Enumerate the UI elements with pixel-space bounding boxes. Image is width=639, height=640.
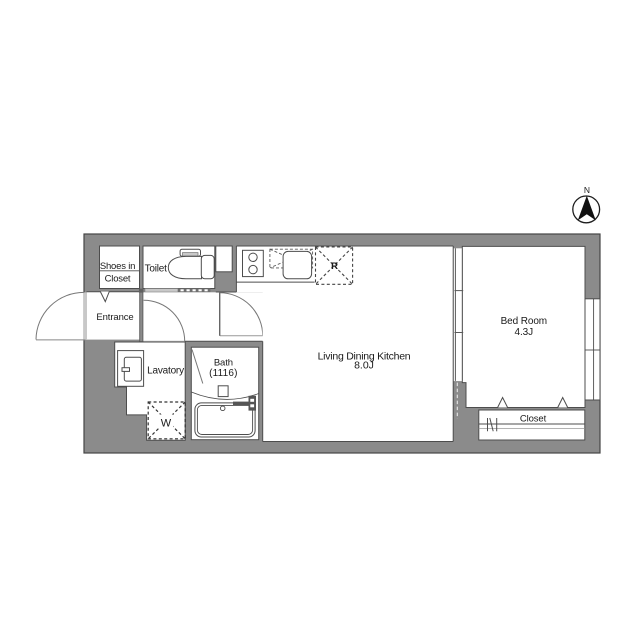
svg-text:Toilet: Toilet (145, 263, 168, 274)
svg-text:Entrance: Entrance (96, 312, 133, 323)
svg-text:R: R (331, 261, 338, 272)
svg-text:4.3J: 4.3J (515, 327, 534, 338)
svg-text:Bed Room: Bed Room (501, 316, 547, 327)
svg-text:Closet: Closet (520, 413, 547, 424)
svg-text:N: N (584, 185, 590, 195)
svg-text:Lavatory: Lavatory (147, 365, 184, 376)
svg-text:8.0J: 8.0J (354, 360, 374, 372)
svg-text:W: W (161, 418, 172, 430)
svg-text:(1116): (1116) (209, 368, 238, 379)
svg-text:Closet: Closet (105, 274, 131, 285)
svg-text:Shoes in: Shoes in (100, 261, 135, 272)
